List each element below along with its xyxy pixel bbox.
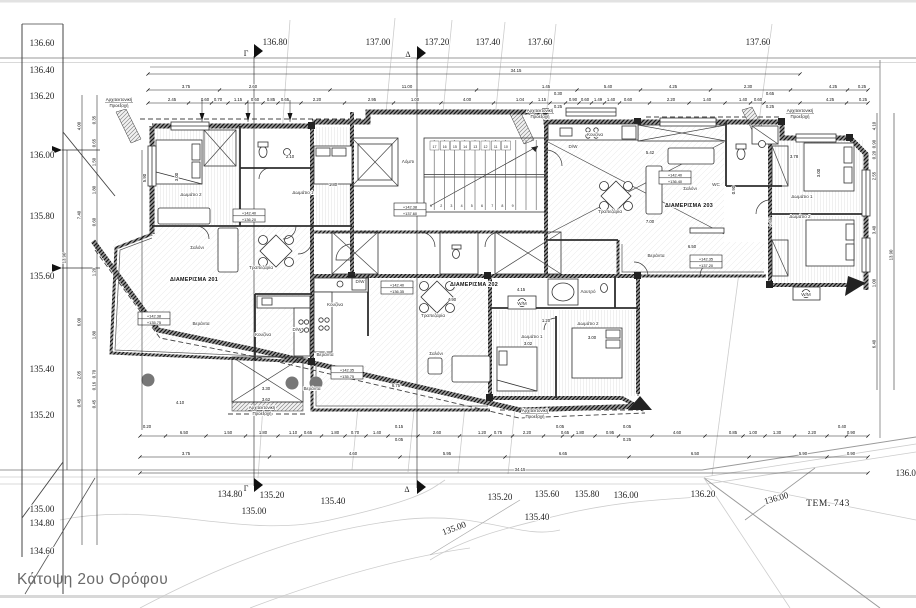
section-letter-gamma-bottom: Γ xyxy=(244,484,249,493)
room-label: Δωμάτιο 2 xyxy=(577,320,599,326)
dimension-text: 0.70 xyxy=(92,369,97,378)
dimension-text: 7.40 xyxy=(77,210,82,219)
dimension-text: 3.78 xyxy=(790,154,799,159)
dimension-text: 1.80 xyxy=(92,330,97,339)
dimension-text: 0.60 xyxy=(251,97,260,102)
stair-number: 1 xyxy=(430,204,432,208)
room-label: Δωμάτιο 2 xyxy=(789,213,811,219)
dimension-text: 3.30 xyxy=(262,386,271,391)
dimension-text: 5.95 xyxy=(443,451,452,456)
room-label: W/M xyxy=(517,301,527,306)
room-label: Σαλόνι xyxy=(683,185,697,191)
dimension-text: 0.20 xyxy=(143,424,152,429)
contour-label: 135.80 xyxy=(575,489,600,499)
dimension-text: 1.00 xyxy=(872,278,877,287)
dimension-text: 0.75 xyxy=(494,430,503,435)
projection-note-line2: Προεξοχή xyxy=(253,411,273,416)
dimension-text: 1.50 xyxy=(224,430,233,435)
bed xyxy=(497,347,537,391)
top-edge-band xyxy=(0,0,916,3)
stair-number: 3 xyxy=(450,204,452,208)
dimension-text: 0.65 xyxy=(92,138,97,147)
dimension-text: 2.20 xyxy=(808,430,817,435)
dining-table xyxy=(259,235,294,267)
left-elevation-label: 135.00 xyxy=(30,504,55,514)
level-sub-value: +136.35 xyxy=(390,289,404,294)
room-label: Δωμάτιο 2 xyxy=(180,191,202,197)
dimension-text: 4.10 xyxy=(872,121,877,130)
dimension-text: 0.15 xyxy=(395,424,404,429)
room-label: Βεράντα xyxy=(303,385,320,391)
dimension-text: 2.05 xyxy=(77,370,82,379)
dimension-text: 1.00 xyxy=(749,430,758,435)
contour-label: 136.20 xyxy=(691,489,716,499)
dimension-text: 1.45 xyxy=(542,84,551,89)
dimension-text: 4.10 xyxy=(176,400,185,405)
dimension-text: 4.90 xyxy=(448,297,457,302)
projection-note-line1: Αρχιτεκτονική xyxy=(527,108,554,113)
level-value: +142.40 xyxy=(390,283,405,288)
dimension-text: 3.40 xyxy=(872,225,877,234)
dimension-text: 4.25 xyxy=(669,84,678,89)
room-label: Δωμάτιο 1 xyxy=(791,193,813,199)
stair-number: 10 xyxy=(504,145,508,149)
room-label: Λουτρό xyxy=(580,288,596,294)
bottom-edge-band xyxy=(0,595,916,598)
dimension-text: 0.90 xyxy=(872,139,877,148)
projection-note-line1: Αρχιτεκτονική xyxy=(787,108,814,113)
dimension-text: 0.60 xyxy=(581,97,590,102)
left-elevation-label: 136.20 xyxy=(30,91,55,101)
dimension-text: 4.60 xyxy=(673,430,682,435)
dimension-text: 5.42 xyxy=(646,150,655,155)
left-elevation-label: 135.20 xyxy=(30,410,55,420)
dimension-text: 0.40 xyxy=(838,424,847,429)
room-label: Βεράντα xyxy=(316,351,333,357)
dimension-text: 0.05 xyxy=(556,424,565,429)
dimension-text: 3.75 xyxy=(182,451,191,456)
dimension-text: 0.35 xyxy=(92,115,97,124)
projection-note-line1: Αρχιτεκτονική xyxy=(249,405,276,410)
contour-label: 137.40 xyxy=(476,37,501,47)
room-label: W/M xyxy=(801,292,811,297)
level-sub-value: +135.75 xyxy=(340,374,354,379)
dimension-text: 2.60 xyxy=(433,430,442,435)
room-label: Βεράντα xyxy=(192,320,209,326)
dimension-text: 6.50 xyxy=(691,451,700,456)
column xyxy=(286,377,299,390)
stair-number: 13 xyxy=(473,145,477,149)
dimension-text: 3.62 xyxy=(262,397,271,402)
stair-number: 6 xyxy=(481,204,483,208)
dimension-text: 0.90 xyxy=(731,185,736,194)
apartment-label: ΔΙΑΜΕΡΙΣΜΑ 202 xyxy=(450,282,498,288)
projection-note-line1: Αρχιτεκτονική xyxy=(106,97,133,102)
contour-label: 135.20 xyxy=(260,490,285,500)
bathtub xyxy=(548,279,578,305)
projection-note-line2: Προεξοχή xyxy=(526,414,546,419)
dimension-text: 1.10 xyxy=(289,430,298,435)
stair-number: 12 xyxy=(484,145,488,149)
room-label: Βεράντα xyxy=(647,252,664,258)
contour-label: 136.00 xyxy=(896,468,916,478)
dimension-text: 0.60 xyxy=(754,97,763,102)
dimension-text: 1.40 xyxy=(373,430,382,435)
dimension-text: 1.15 xyxy=(538,97,547,102)
left-elevation-label: 135.80 xyxy=(30,211,55,221)
dimension-text: 0.25 xyxy=(554,104,563,109)
dimension-text: 1.20 xyxy=(478,430,487,435)
room-label: D/W xyxy=(293,327,303,332)
dimension-text: 6.00 xyxy=(77,317,82,326)
apartment-label: ΔΙΑΜΕΡΙΣΜΑ 201 xyxy=(170,277,218,283)
dimension-text: 1.30 xyxy=(773,430,782,435)
apartment-label: ΔΙΑΜΕΡΙΣΜΑ 203 xyxy=(665,203,713,209)
dimension-text: 0.05 xyxy=(395,437,404,442)
left-elevation-label: 134.60 xyxy=(30,546,55,556)
room-label: Λόμπι xyxy=(402,158,414,164)
dimension-text: 13.90 xyxy=(62,252,67,263)
dimension-text: 0.70 xyxy=(214,97,223,102)
room-label: Σαλόνι xyxy=(190,244,204,250)
dimension-text: 11.00 xyxy=(402,84,413,89)
bed xyxy=(156,140,202,184)
room-label: D/W xyxy=(569,144,579,149)
dimension-text: 2.20 xyxy=(313,97,322,102)
dimension-text: 2.30 xyxy=(744,84,753,89)
dimension-text: 0.60 xyxy=(624,97,633,102)
dimension-text: 0.70 xyxy=(351,430,360,435)
level-sub-value: +137.60 xyxy=(403,211,418,216)
level-value: +142.40 xyxy=(668,173,683,178)
dimension-text: 0.25 xyxy=(623,437,632,442)
dimension-text: 1.80 xyxy=(329,182,338,187)
dimension-text: 0.65 xyxy=(561,430,570,435)
dimension-text: 13.90 xyxy=(889,249,894,260)
left-elevation-label: 136.60 xyxy=(30,38,55,48)
stair-number: 5 xyxy=(471,204,473,208)
shower xyxy=(752,126,778,144)
left-elevation-label: 136.40 xyxy=(30,65,55,75)
bed xyxy=(804,143,854,191)
dimension-text: 3.00 xyxy=(588,335,597,340)
room-label: WC xyxy=(712,182,720,187)
dimension-text: 1.40 xyxy=(703,97,712,102)
room-label: Δωμάτιο 1 xyxy=(292,189,314,195)
dimension-text: 0.05 xyxy=(623,424,632,429)
dimension-text: 1.04 xyxy=(516,97,525,102)
dimension-text: 1.80 xyxy=(92,185,97,194)
dimension-text: 3.02 xyxy=(524,341,533,346)
contour-label: 136.00 xyxy=(614,490,639,500)
window xyxy=(660,118,716,126)
toilet xyxy=(258,142,268,158)
stair-number: 8 xyxy=(501,204,503,208)
section-letter-gamma-top: Γ xyxy=(244,49,249,58)
dimension-text: 0.45 xyxy=(92,399,97,408)
dimension-text: 0.65 xyxy=(304,430,313,435)
dimension-text: 3.75 xyxy=(182,84,191,89)
dimension-text: 0.90 xyxy=(569,97,578,102)
stair-number: 17 xyxy=(433,145,437,149)
dimension-text: 1.80 xyxy=(331,430,340,435)
dimension-text: 2.20 xyxy=(523,430,532,435)
dimension-text: 1.40 xyxy=(607,97,616,102)
dimension-text: 1.49 xyxy=(594,97,603,102)
dimension-text: 0.65 xyxy=(766,91,775,96)
section-letter-delta-top: Δ xyxy=(405,50,410,59)
dimension-text: 0.90 xyxy=(847,430,856,435)
dimension-text: 0.95 xyxy=(606,430,615,435)
stair-number: 7 xyxy=(491,204,493,208)
dimension-text: 5.40 xyxy=(604,84,613,89)
dimension-text: 6.50 xyxy=(688,244,697,249)
dining-table xyxy=(600,181,633,211)
floor-plan-svg: Γ Δ Γ Δ 136.60136.40136.20136.00135.8013… xyxy=(0,0,916,608)
dimension-text: 6.40 xyxy=(872,339,877,348)
bed xyxy=(806,220,854,266)
drawing-title: Κάτοψη 2ου Ορόφου xyxy=(17,571,168,588)
level-value: +142.35 xyxy=(340,368,354,373)
dimension-text: 6.50 xyxy=(180,430,189,435)
dimension-text: 0.25 xyxy=(859,97,868,102)
toilet xyxy=(736,144,746,160)
projection-note-line2: Προεξοχή xyxy=(110,103,130,108)
dimension-text: 6.75 xyxy=(392,383,401,388)
dimension-text: 5.90 xyxy=(142,173,147,182)
dimension-text: 4.60 xyxy=(349,451,358,456)
level-sub-value: +136.20 xyxy=(242,217,257,222)
contour-label: 137.60 xyxy=(528,37,553,47)
level-sub-value: +135.75 xyxy=(147,320,161,325)
contour-label: 136.80 xyxy=(263,37,288,47)
dimension-text: 0.60 xyxy=(92,217,97,226)
dimension-text: 3.00 xyxy=(816,168,821,177)
stair-number: 16 xyxy=(443,145,447,149)
dimension-text: 0.45 xyxy=(77,398,82,407)
room-label: Σαλόνι xyxy=(429,350,443,356)
window xyxy=(862,170,870,216)
dimension-text: 6.65 xyxy=(559,451,568,456)
contour-label: 135.60 xyxy=(535,489,560,499)
left-elevation-label: 135.40 xyxy=(30,364,55,374)
floor-plan-canvas: Γ Δ Γ Δ 136.60136.40136.20136.00135.8013… xyxy=(0,0,916,608)
contour-label: 135.40 xyxy=(525,512,550,522)
level-sub-value: +137.20 xyxy=(699,263,714,268)
level-value: +142.35 xyxy=(699,257,713,262)
dimension-text: 0.90 xyxy=(847,451,856,456)
left-elevation-label: 136.00 xyxy=(30,150,55,160)
dimension-text: 2.55 xyxy=(872,171,877,180)
bed xyxy=(314,146,352,184)
level-sub-value: +136.40 xyxy=(668,179,683,184)
dimension-text: 1.15 xyxy=(234,97,243,102)
dimension-text: 4.15 xyxy=(517,287,526,292)
dimension-text: 0.65 xyxy=(281,97,290,102)
stair-number: 2 xyxy=(440,204,442,208)
dimension-text: 1.80 xyxy=(576,430,585,435)
column xyxy=(142,374,155,387)
section-letter-delta-bottom: Δ xyxy=(404,485,409,494)
dimension-text: 0.85 xyxy=(267,97,276,102)
dimension-text: 0.25 xyxy=(858,84,867,89)
dimension-text: 1.40 xyxy=(739,97,748,102)
dimension-text: 1.50 xyxy=(92,157,97,166)
dimension-text: 5.90 xyxy=(799,451,808,456)
bed xyxy=(572,328,622,378)
dimension-text: 1.80 xyxy=(259,430,268,435)
dimension-text: 0.16 xyxy=(92,381,97,390)
level-value: +142.38 xyxy=(147,314,161,319)
dimension-text: 2.60 xyxy=(249,84,258,89)
contour-label: 137.00 xyxy=(366,37,391,47)
level-value: +142.40 xyxy=(242,211,257,216)
plot-number-label: ΤΕΜ. 743 xyxy=(806,499,850,509)
room-label: Δωμάτιο 1 xyxy=(521,333,543,339)
left-elevation-label: 135.60 xyxy=(30,271,55,281)
dimension-text: 4.25 xyxy=(826,97,835,102)
window xyxy=(862,238,870,272)
toilet xyxy=(601,284,608,293)
dimension-text: 34.15 xyxy=(511,68,522,73)
dimension-text: 4.00 xyxy=(77,121,82,130)
stair-number: 14 xyxy=(463,145,467,149)
left-elevation-label: 134.80 xyxy=(30,518,55,528)
dimension-text: 4.25 xyxy=(829,84,838,89)
dimension-text: 2.95 xyxy=(368,97,377,102)
window xyxy=(171,122,209,130)
window xyxy=(148,146,156,186)
stair-number: 9 xyxy=(512,204,514,208)
dimension-text: 4.00 xyxy=(463,97,472,102)
stair-number: 4 xyxy=(461,204,463,208)
window xyxy=(566,108,616,116)
dimension-text: 3.00 xyxy=(174,172,179,181)
dimension-text: 2.45 xyxy=(168,97,177,102)
dimension-text: 2.65 xyxy=(768,217,773,226)
dimension-text: 2.20 xyxy=(667,97,676,102)
dimension-text: 1.20 xyxy=(92,267,97,276)
contour-label: 135.40 xyxy=(321,496,346,506)
contour-label: 135.20 xyxy=(488,492,513,502)
washbasin xyxy=(759,141,766,148)
stair-number: 15 xyxy=(453,145,457,149)
projection-note-line2: Προεξοχή xyxy=(791,114,811,119)
dimension-text: 1.20 xyxy=(542,318,551,323)
contour-label: 137.60 xyxy=(746,37,771,47)
level-value: +142.38 xyxy=(403,205,417,210)
dimension-text: 34.15 xyxy=(515,467,526,472)
dimension-text: 7.00 xyxy=(646,219,655,224)
dimension-text: 2.10 xyxy=(286,154,295,159)
projection-note-line1: Αρχιτεκτονική xyxy=(522,408,549,413)
dimension-text: 0.30 xyxy=(554,91,563,96)
contour-label: 137.20 xyxy=(425,37,450,47)
dimension-text: 0.25 xyxy=(766,104,775,109)
projection-note-line2: Προεξοχή xyxy=(531,114,551,119)
stair-number: 11 xyxy=(494,145,498,149)
dimension-text: 0.20 xyxy=(872,150,877,159)
dimension-text: 0.85 xyxy=(729,430,738,435)
window xyxy=(796,134,836,142)
contour-label: 135.00 xyxy=(242,506,267,516)
dimension-text: 1.00 xyxy=(411,97,420,102)
contour-label: 134.80 xyxy=(218,489,243,499)
room-label: D/W xyxy=(356,279,366,284)
